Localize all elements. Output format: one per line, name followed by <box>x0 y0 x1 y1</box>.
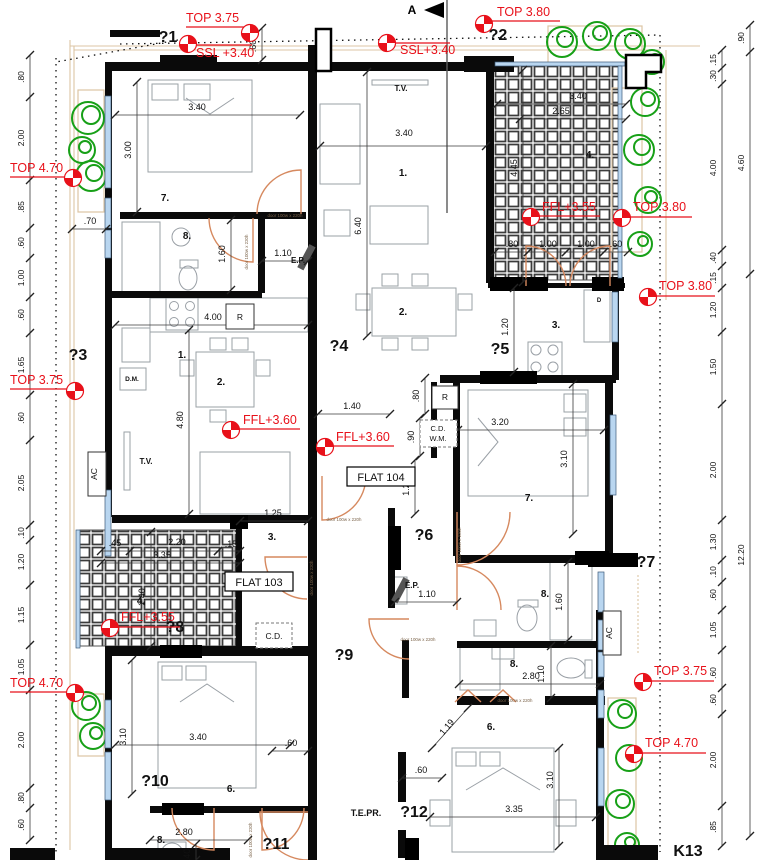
furniture-circle <box>186 302 195 311</box>
chain-dim-text: 2.05 <box>16 474 26 491</box>
level-annotation: TOP 4.70 <box>10 676 84 702</box>
dim-text: 1.60 <box>554 593 564 611</box>
window <box>105 96 111 188</box>
planter <box>608 698 636 856</box>
door-size-note: door 100w x 220h <box>244 234 249 269</box>
window <box>610 415 616 495</box>
right-inner-chain: .15.304.00.40.151.201.502.001.30.10.601.… <box>708 46 726 850</box>
chain-dim-text: 1.20 <box>708 301 718 318</box>
chain-dim-text: .85 <box>16 201 26 213</box>
wall <box>258 219 265 293</box>
chain-dim-text: .10 <box>708 566 718 578</box>
wall-beam <box>490 277 548 291</box>
furniture-circle <box>548 362 558 372</box>
furniture-item <box>210 410 226 422</box>
room-label: 3. <box>552 320 561 331</box>
dimension: 3.40 <box>316 128 490 150</box>
level-annotation-text: TOP 4.70 <box>10 676 63 690</box>
wall <box>112 515 312 523</box>
tree-icon <box>82 696 96 710</box>
dim-text: 3.20 <box>491 417 509 427</box>
dim-text: .60 <box>610 239 623 249</box>
furniture-item <box>232 338 248 350</box>
dimension: 3.40 <box>111 102 304 119</box>
dim-text: .60 <box>415 765 428 775</box>
furniture-item <box>474 620 496 636</box>
survey-marker-q7: ?7 <box>637 554 656 571</box>
furniture-item <box>518 600 538 607</box>
right-outer-chain: .904.6012.20 <box>736 21 754 840</box>
chain-dim-text: 2.00 <box>16 731 26 748</box>
dim-text: 3.40 <box>188 102 206 112</box>
dimension: 3.40 <box>111 732 294 749</box>
door-size-note: door 100w x 220h <box>498 698 533 703</box>
window <box>105 230 111 258</box>
dim-text: 1.25 <box>264 508 282 518</box>
room-label: 8. <box>157 835 166 846</box>
boxed-label: AC <box>88 452 106 496</box>
chain-dim-text: .40 <box>708 252 718 264</box>
furniture-item <box>468 390 588 496</box>
tree-icon <box>616 794 630 808</box>
room-label: D.M. <box>125 376 139 383</box>
level-annotation-text: SSL +3.40 <box>196 46 254 60</box>
furniture-item <box>200 452 290 514</box>
dimension: 1.20 <box>500 284 518 376</box>
room-label: 8. <box>183 231 192 242</box>
survey-marker-q12: ?12 <box>400 804 428 821</box>
chain-dim-text: .60 <box>16 412 26 424</box>
label-text: W.M. <box>429 434 446 443</box>
dim-tick <box>464 704 472 712</box>
furniture-item <box>124 432 130 490</box>
dimension: 1.10 <box>536 642 555 702</box>
dimension: 3.20 <box>454 417 608 434</box>
level-annotation: TOP 4.70 <box>626 736 707 763</box>
chain-dim-text: 1.20 <box>16 553 26 570</box>
window <box>105 752 111 800</box>
wall <box>398 830 406 858</box>
chain-dim-text: .60 <box>16 819 26 831</box>
tree-icon <box>641 92 655 106</box>
toilet-icon <box>557 658 585 678</box>
dim-text: 4.00 <box>204 312 222 322</box>
wall-beam <box>388 526 401 570</box>
dim-text: .40 <box>182 849 192 860</box>
wall-beam <box>162 803 204 815</box>
dim-text: 1.10 <box>536 665 546 683</box>
survey-marker-q6: ?6 <box>415 527 434 544</box>
dim-text: .80 <box>411 390 421 403</box>
survey-marker-q10: ?10 <box>141 773 169 790</box>
chain-dim-text: 1.15 <box>16 606 26 623</box>
dim-text: 4.45 <box>509 159 519 177</box>
tree-icon <box>625 33 641 49</box>
chain-dim-text: 2.00 <box>708 751 718 768</box>
room-label: 8. <box>510 659 519 670</box>
dim-text: 2.80 <box>175 827 193 837</box>
chain-dim-text: 1.50 <box>708 358 718 375</box>
window <box>598 572 604 612</box>
dim-text: 1.19 <box>437 717 456 737</box>
room-label: E.P. <box>405 581 419 590</box>
flat-name-label: FLAT 103 <box>225 572 293 591</box>
dim-text: 4.80 <box>175 411 185 429</box>
chain-dim-text: 2.00 <box>16 129 26 146</box>
furniture-circle <box>531 362 541 372</box>
window <box>105 198 111 228</box>
room-label: T.V. <box>139 457 152 466</box>
boxed-label: C.D. <box>256 623 292 648</box>
dim-text: .60 <box>285 738 298 748</box>
survey-marker-q11: ?11 <box>263 836 290 853</box>
wall <box>110 30 160 37</box>
door-size-note: door 100w x 220h <box>309 560 314 595</box>
survey-marker-q9: ?9 <box>335 647 354 664</box>
chain-dim-text: .60 <box>708 694 718 706</box>
chain-dim-text: 4.00 <box>708 159 718 176</box>
chain-dim-text: .60 <box>16 237 26 249</box>
survey-marker-q3: ?3 <box>69 347 88 364</box>
tree-icon <box>82 106 100 124</box>
window <box>612 292 618 342</box>
room-label: 4. <box>586 150 595 161</box>
section-line-A: A <box>408 0 447 213</box>
dim-text: .80 <box>506 239 519 249</box>
dimension: .80 <box>411 374 429 418</box>
furniture-item <box>372 288 456 336</box>
furniture-item <box>382 338 398 350</box>
room-label: 7. <box>161 193 170 204</box>
furniture-item <box>256 360 270 376</box>
level-annotation: TOP 3.75 <box>635 664 715 691</box>
chain-dim-text: .10 <box>16 527 26 539</box>
window <box>105 700 111 748</box>
level-annotation-text: FFL+3.60 <box>243 413 297 427</box>
section-arrow-icon <box>424 2 444 18</box>
chain-dim-text: 12.20 <box>736 544 746 566</box>
wall-beam <box>405 838 419 860</box>
level-annotation-text: FFL+3.55 <box>542 200 596 214</box>
label-text: C.D. <box>266 631 283 641</box>
boxed-label: C.D.W.M. <box>420 420 457 447</box>
room-label: 6. <box>227 784 236 795</box>
level-annotation-text: SSL+3.40 <box>400 43 455 57</box>
wall <box>596 845 658 860</box>
room-label: T.V. <box>394 84 407 93</box>
dim-text: .90 <box>406 431 416 444</box>
dim-text: 2.20 <box>168 537 186 547</box>
dim-text: 6.40 <box>353 217 363 235</box>
dimension: 1.20 <box>401 456 419 518</box>
furniture-item <box>458 294 472 310</box>
toilet-icon <box>179 266 197 290</box>
dim-text: 1.00 <box>577 239 595 249</box>
room-label: D <box>597 298 602 304</box>
window <box>598 690 604 718</box>
dim-text: 1.10 <box>274 248 292 258</box>
dim-text: 3.10 <box>118 728 128 746</box>
tree-icon <box>618 704 632 718</box>
chain-dim-text: .80 <box>16 792 26 804</box>
door-size-note: door 100w x 220h <box>457 527 462 562</box>
bed-chevron <box>180 684 234 702</box>
furniture-item <box>480 752 500 766</box>
furniture-item <box>412 338 428 350</box>
wall <box>308 45 317 517</box>
dim-text: 1.20 <box>500 318 510 336</box>
chain-dim-text: 1.00 <box>16 269 26 286</box>
level-annotation-text: TOP 3.75 <box>10 373 63 387</box>
furniture-circle <box>170 302 179 311</box>
tree-icon <box>557 31 573 47</box>
dim-text: 3.35 <box>505 804 523 814</box>
label-text: C.D. <box>431 424 446 433</box>
furniture-item <box>564 418 586 436</box>
dimension: 1.40 <box>314 401 394 418</box>
dimension: 2.80 <box>455 671 604 688</box>
section-label: A <box>408 3 417 17</box>
wall-beam <box>160 645 202 658</box>
dimension: 1.19 <box>428 704 472 752</box>
wall-beam <box>480 371 537 384</box>
furniture-item <box>370 206 428 244</box>
chain-dim-text: 1.05 <box>708 621 718 638</box>
survey-marker-q4: ?4 <box>330 338 349 355</box>
level-annotation: TOP 3.80 <box>640 279 716 306</box>
room-label: 7. <box>525 493 534 504</box>
dimension: 3.10 <box>559 380 577 538</box>
level-annotation-text: FFL+3.60 <box>336 430 390 444</box>
chain-dim-text: .60 <box>708 589 718 601</box>
dim-text: .15 <box>225 539 238 549</box>
room-label: 1. <box>178 350 187 361</box>
tree-icon <box>86 165 102 181</box>
dim-text: .70 <box>84 216 97 226</box>
floor-plan-page: A 3.403.00.60.701.601.104.004.801.403.40… <box>0 0 763 860</box>
wall <box>10 848 55 860</box>
dim-tick <box>428 744 436 752</box>
chain-dim-text: 1.65 <box>16 356 26 373</box>
flat-label-text: FLAT 103 <box>235 577 282 589</box>
dimension: 1.60 <box>554 558 572 644</box>
furniture-item <box>180 360 194 376</box>
room-label: 3. <box>268 532 277 543</box>
furniture-item <box>122 222 160 292</box>
furniture-item <box>456 752 476 766</box>
chain-dim-text: .60 <box>16 309 26 321</box>
level-annotation-text: FFL+3.55 <box>121 610 175 624</box>
dim-text: 3.00 <box>123 141 133 159</box>
dim-text: 3.10 <box>545 771 555 789</box>
chain-dim-text: .60 <box>708 667 718 679</box>
level-annotation-text: TOP 3.80 <box>659 279 712 293</box>
dim-text: 1.60 <box>217 245 227 263</box>
wall <box>457 641 605 648</box>
furniture-item <box>180 260 198 268</box>
room-label: 2. <box>217 377 226 388</box>
dim-text: .45 <box>109 538 122 548</box>
flat-label-text: FLAT 104 <box>357 472 404 484</box>
dim-text: 3.40 <box>189 732 207 742</box>
furniture-item <box>148 80 252 172</box>
furniture-item <box>460 646 500 690</box>
room-label: E.P. <box>291 256 305 265</box>
wall <box>105 808 112 860</box>
level-annotation-text: TOP 3.75 <box>654 664 707 678</box>
wall <box>486 62 494 283</box>
dim-text: 3.10 <box>559 450 569 468</box>
door-swing <box>257 170 301 214</box>
room-label: 6. <box>487 722 496 733</box>
furniture-item <box>122 328 150 362</box>
tree-icon <box>593 26 607 40</box>
dimension: 1.60 <box>217 216 235 294</box>
window <box>598 652 604 677</box>
door-swing <box>457 566 501 610</box>
dimension: 3.10 <box>118 656 136 798</box>
level-annotation: TOP 3.80 <box>476 5 561 33</box>
furniture-item <box>186 666 206 680</box>
chain-dim-text: 1.30 <box>708 533 718 550</box>
dim-text: 1.00 <box>539 239 557 249</box>
furniture-item <box>158 662 256 788</box>
furniture-item <box>184 84 210 100</box>
door-size-note: door 100w x 220h <box>268 213 303 218</box>
tree-icon <box>79 141 91 153</box>
wall <box>112 291 262 298</box>
level-annotation: FFL+3.60 <box>317 430 395 456</box>
furniture-item <box>430 800 450 826</box>
room-label: 2. <box>399 307 408 318</box>
level-annotation-text: TOP 3.80 <box>633 200 686 214</box>
furniture-item <box>324 210 350 236</box>
level-annotation-text: TOP 3.75 <box>186 11 239 25</box>
level-annotation: TOP 3.75 <box>186 11 259 42</box>
tree-icon <box>638 236 648 246</box>
room-label: 4. <box>137 596 146 607</box>
boxed-label: R <box>432 386 458 409</box>
level-annotation: FFL+3.60 <box>223 413 301 439</box>
window <box>495 62 625 66</box>
wall <box>402 640 409 698</box>
flat-name-label: FLAT 104 <box>347 467 415 486</box>
chain-dim-text: .80 <box>16 71 26 83</box>
flat-labels: FLAT 104FLAT 103 <box>225 467 415 591</box>
label-text: R <box>442 392 448 402</box>
boxed-label: AC <box>603 611 621 655</box>
survey-marker-q2: ?2 <box>489 27 508 44</box>
furniture-item <box>210 338 226 350</box>
survey-marker-K13: K13 <box>673 843 702 860</box>
dim-text: 1.40 <box>343 401 361 411</box>
level-annotation: SSL+3.40 <box>379 35 456 58</box>
label-text: AC <box>604 627 614 639</box>
level-annotation-text: TOP 4.70 <box>10 161 63 175</box>
chain-dim-text: 2.00 <box>708 461 718 478</box>
level-annotation: TOP 3.80 <box>614 200 693 227</box>
level-annotation-text: TOP 4.70 <box>645 736 698 750</box>
window <box>76 530 80 648</box>
room-label: 1. <box>399 168 408 179</box>
wall <box>398 752 406 802</box>
toilet-icon <box>517 605 537 631</box>
wall <box>308 648 317 860</box>
label-text: R <box>237 312 243 322</box>
furniture-item <box>382 274 398 286</box>
dim-text: 3.40 <box>569 91 587 101</box>
floor-plan-drawing: A 3.403.00.60.701.601.104.004.801.403.40… <box>0 0 763 860</box>
level-annotation: TOP 4.70 <box>10 161 82 187</box>
door-size-note: door 100w x 220h <box>327 517 362 522</box>
level-annotation: TOP 3.75 <box>10 373 84 400</box>
dim-text: 3.40 <box>395 128 413 138</box>
room-label: T.E.PR. <box>351 808 382 818</box>
chain-dim-text: .15 <box>708 54 718 66</box>
dim-text: 2.65 <box>552 106 570 116</box>
dim-text: 3.35 <box>153 550 171 560</box>
furniture-item <box>585 660 592 678</box>
dim-text: 1.10 <box>418 589 436 599</box>
bed-chevron <box>466 768 540 790</box>
chain-dim-text: 1.05 <box>16 658 26 675</box>
furniture-item <box>412 274 428 286</box>
label-text: AC <box>89 468 99 480</box>
wall-beam <box>588 553 638 567</box>
furniture-item <box>356 294 370 310</box>
chain-dim-text: .85 <box>708 821 718 833</box>
tree-icon <box>90 727 102 739</box>
dimension: .60 <box>268 738 312 755</box>
boxed-label: R <box>226 304 254 329</box>
wall-beam <box>592 277 624 291</box>
furniture-circle <box>548 345 558 355</box>
furniture-circle <box>531 345 541 355</box>
furniture-item <box>320 104 360 184</box>
survey-marker-q5: ?5 <box>491 341 510 358</box>
chain-dim-text: 4.60 <box>736 154 746 171</box>
dimension: 4.00 <box>111 312 312 329</box>
chain-dim-text: .90 <box>736 32 746 44</box>
furniture-item <box>452 748 554 852</box>
door-size-note: door 100w x 220h <box>248 822 253 857</box>
level-annotation-text: TOP 3.80 <box>497 5 550 19</box>
furniture-item <box>162 666 182 680</box>
door-size-note: door 100w x 220h <box>401 637 436 642</box>
survey-marker-q1: ?1 <box>159 29 178 46</box>
chain-dim-text: .30 <box>708 70 718 82</box>
room-label: 8. <box>541 589 550 600</box>
dimension: 3.00 <box>123 78 141 216</box>
window <box>598 748 604 806</box>
furniture-item <box>564 394 586 412</box>
furniture-item <box>152 84 178 100</box>
